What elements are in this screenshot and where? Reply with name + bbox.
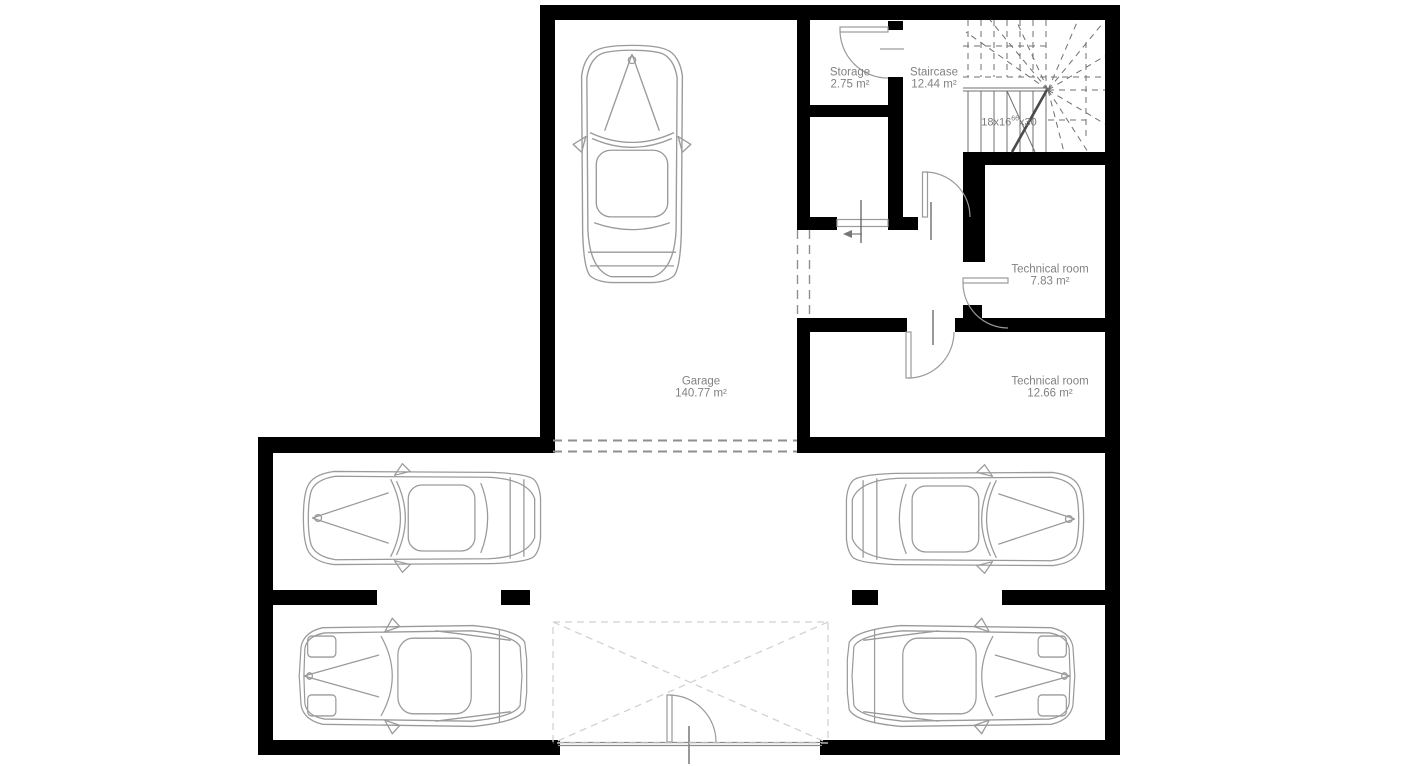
room-area: 7.83 m² — [1011, 276, 1088, 288]
wall — [1002, 590, 1105, 605]
staircase — [963, 20, 1105, 152]
door-swing-arc — [908, 332, 954, 378]
room-label-staircase: Staircase 12.44 m² — [910, 67, 958, 92]
wall — [1105, 5, 1120, 755]
wall — [820, 740, 1120, 755]
stair-spec-prefix: 18x16 — [981, 116, 1011, 128]
door-swing-arc — [669, 695, 716, 742]
parking-car-upper-left — [303, 464, 540, 573]
wall — [258, 740, 560, 755]
wall — [540, 5, 1120, 20]
wall — [955, 318, 963, 332]
room-area: 2.75 m² — [830, 79, 870, 91]
stair-winder-dashed — [966, 20, 1105, 152]
wall — [501, 590, 530, 605]
room-name: Technical room — [1011, 264, 1088, 276]
floor-plan: Garage 140.77 m² Storage 2.75 m² Stairca… — [0, 0, 1414, 766]
room-name: Garage — [675, 376, 727, 388]
room-label-technical-small: Technical room 7.83 m² — [1011, 264, 1088, 289]
room-area: 12.44 m² — [910, 79, 958, 91]
wall — [852, 590, 878, 605]
stair-upper-flight-dashed — [963, 20, 1105, 88]
room-label-garage: Garage 140.77 m² — [675, 376, 727, 401]
garage-lobby-door — [837, 200, 888, 243]
room-area: 12.66 m² — [1011, 388, 1088, 400]
wall — [797, 20, 810, 217]
wall — [258, 590, 377, 605]
wall — [963, 152, 985, 262]
wall — [888, 217, 918, 230]
room-label-storage: Storage 2.75 m² — [830, 67, 870, 92]
room-name: Staircase — [910, 67, 958, 79]
stair-spec-sup: 66 — [1011, 116, 1019, 123]
wall — [797, 318, 810, 453]
wall — [797, 105, 897, 117]
room-area: 140.77 m² — [675, 388, 727, 400]
wall — [797, 437, 1120, 453]
wall — [888, 21, 903, 30]
garage-car — [573, 45, 691, 282]
stair-spec-suffix: x30 — [1019, 116, 1037, 128]
wall — [797, 217, 837, 230]
wall — [888, 77, 903, 217]
garage-hall-opening — [798, 230, 810, 318]
wall — [258, 437, 555, 453]
garage-door-zone — [553, 622, 828, 743]
room-name: Technical room — [1011, 376, 1088, 388]
lobby-corridor-door — [923, 172, 971, 240]
room-label-technical-large: Technical room 12.66 m² — [1011, 376, 1088, 401]
room-name: Storage — [830, 67, 870, 79]
entrance-arrow-head — [843, 230, 852, 238]
wall — [540, 5, 555, 453]
technical-room-large-door — [906, 310, 954, 378]
parking-car-lower-right — [847, 618, 1074, 734]
stair-spec-label: 18x1666x30 — [981, 116, 1037, 129]
parking-car-lower-left — [299, 618, 526, 734]
pedestrian-garage-door — [667, 695, 716, 764]
garage-parking-opening — [553, 441, 797, 452]
wall — [797, 318, 907, 332]
parking-car-upper-right — [846, 465, 1083, 574]
wall — [963, 318, 1105, 332]
